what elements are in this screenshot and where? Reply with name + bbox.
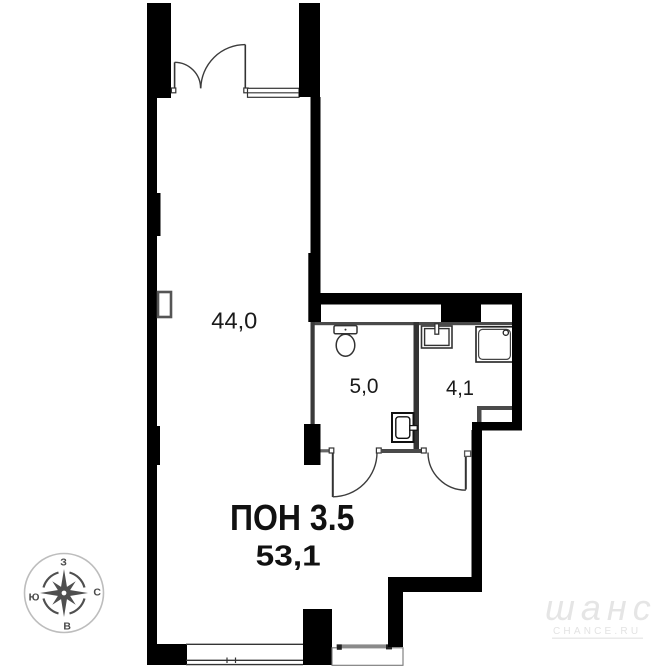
svg-text:С: С xyxy=(93,587,101,599)
svg-text:Ю: Ю xyxy=(29,592,40,604)
svg-text:CHANCE.RU: CHANCE.RU xyxy=(553,626,641,637)
svg-text:В: В xyxy=(63,620,71,632)
svg-text:шанс: шанс xyxy=(545,587,657,628)
svg-text:4,1: 4,1 xyxy=(446,376,474,400)
svg-text:ПОН 3.5: ПОН 3.5 xyxy=(230,497,355,538)
svg-text:53,1: 53,1 xyxy=(256,541,321,573)
svg-text:5,0: 5,0 xyxy=(350,374,379,398)
svg-text:44,0: 44,0 xyxy=(211,308,257,334)
svg-text:З: З xyxy=(60,556,67,568)
